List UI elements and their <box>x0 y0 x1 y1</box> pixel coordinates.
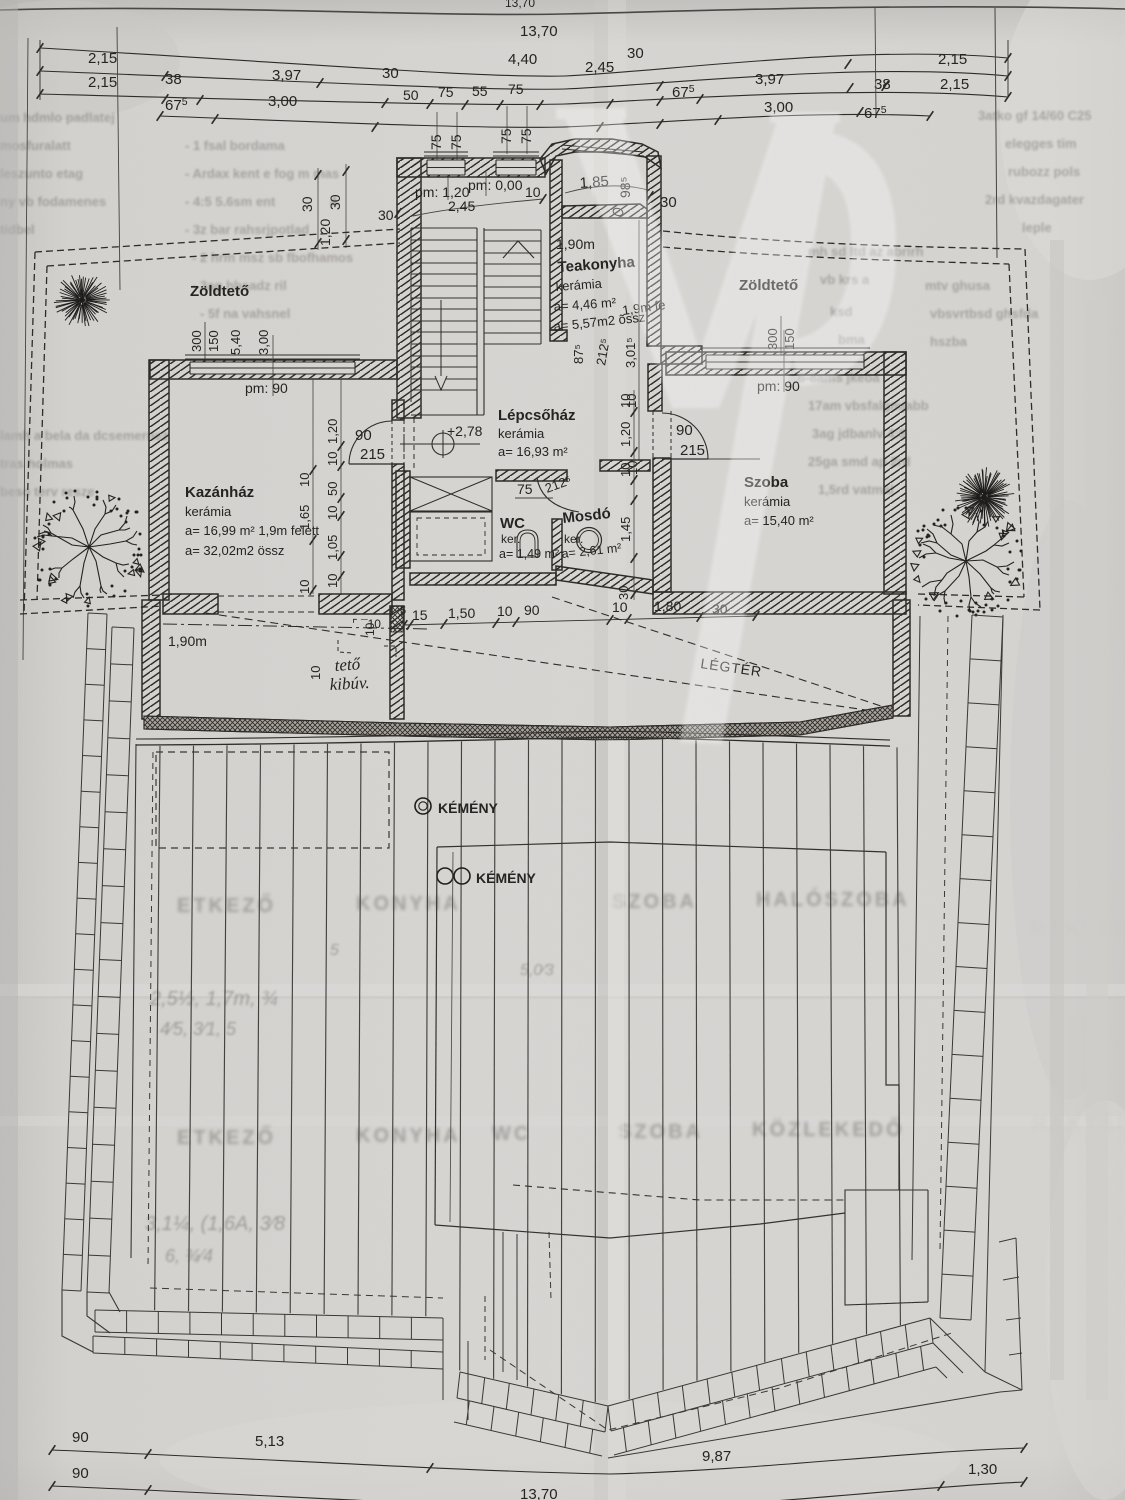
svg-text:150: 150 <box>206 330 221 352</box>
svg-text:5: 5 <box>182 96 188 108</box>
svg-text:leple: leple <box>1022 220 1052 235</box>
svg-text:Zöldtető: Zöldtető <box>190 283 249 300</box>
svg-text:3,00: 3,00 <box>268 93 297 110</box>
svg-text:SZOBA: SZOBA <box>618 1121 703 1143</box>
svg-text:75: 75 <box>498 128 514 144</box>
svg-text:10: 10 <box>325 506 340 520</box>
svg-text:30: 30 <box>627 45 644 62</box>
svg-text:10: 10 <box>325 452 340 466</box>
svg-text:10: 10 <box>297 580 312 594</box>
svg-text:1,90m: 1,90m <box>556 236 595 252</box>
svg-text:pm: 90: pm: 90 <box>245 380 288 396</box>
svg-text:- 4:5 5.6sm ent: - 4:5 5.6sm ent <box>185 194 276 209</box>
svg-text:- 5f na vahsnel: - 5f na vahsnel <box>200 306 290 321</box>
svg-text:75: 75 <box>438 84 454 100</box>
svg-text:mtv ghusa: mtv ghusa <box>925 278 991 293</box>
svg-text:10: 10 <box>363 622 377 636</box>
svg-text:13,70: 13,70 <box>520 23 558 40</box>
svg-text:5: 5 <box>400 605 406 617</box>
svg-text:10: 10 <box>612 599 628 615</box>
svg-text:2,15: 2,15 <box>88 50 117 67</box>
svg-text:10: 10 <box>497 603 513 619</box>
svg-text:5: 5 <box>330 942 339 959</box>
svg-text:30: 30 <box>382 65 399 82</box>
svg-text:10: 10 <box>297 473 312 487</box>
svg-text:1,80: 1,80 <box>654 598 681 614</box>
svg-text:3atko gf 14/60 C25: 3atko gf 14/60 C25 <box>978 108 1091 123</box>
svg-text:1,65: 1,65 <box>297 505 312 530</box>
svg-text:rubozz pols: rubozz pols <box>1008 164 1080 179</box>
svg-text:1,20: 1,20 <box>325 419 340 444</box>
svg-text:30: 30 <box>616 586 631 600</box>
svg-text:- 2 hrm msz sb fbofhamos: - 2 hrm msz sb fbofhamos <box>192 250 353 265</box>
svg-text:+2,78: +2,78 <box>447 423 483 439</box>
svg-text:67: 67 <box>672 84 689 101</box>
svg-text:38: 38 <box>874 76 891 93</box>
svg-text:30: 30 <box>327 194 343 210</box>
svg-text:elegges tim: elegges tim <box>1005 136 1077 151</box>
svg-text:75: 75 <box>448 134 464 150</box>
svg-text:5,40: 5,40 <box>228 330 243 355</box>
svg-text:2,15: 2,15 <box>938 51 967 68</box>
svg-text:2rd kvazdagater: 2rd kvazdagater <box>985 192 1084 207</box>
svg-text:1,20: 1,20 <box>618 422 633 447</box>
svg-text:vbsvrtbsd ghsfda: vbsvrtbsd ghsfda <box>930 306 1039 321</box>
svg-text:kerámia: kerámia <box>185 504 232 519</box>
svg-text:Lépcsőház: Lépcsőház <box>498 407 576 424</box>
svg-text:30: 30 <box>660 194 677 211</box>
svg-text:90: 90 <box>72 1429 89 1446</box>
svg-text:75: 75 <box>508 81 524 97</box>
svg-text:KONYHA: KONYHA <box>356 1125 461 1147</box>
svg-text:a= 1,49 m²: a= 1,49 m² <box>499 547 559 561</box>
svg-text:87⁵: 87⁵ <box>571 344 586 364</box>
svg-text:30: 30 <box>378 207 394 223</box>
svg-text:215: 215 <box>360 446 385 463</box>
svg-text:KÉMÉNY: KÉMÉNY <box>476 870 537 886</box>
svg-text:RAKTÁR: RAKTÁR <box>1032 1112 1125 1135</box>
svg-text:13,70: 13,70 <box>520 1486 558 1500</box>
svg-text:- 3z bar rahsrjpotlad: - 3z bar rahsrjpotlad <box>185 222 309 237</box>
svg-text:75: 75 <box>428 134 444 150</box>
svg-text:ETKEZŐ: ETKEZŐ <box>177 1126 276 1149</box>
svg-text:1,20: 1,20 <box>317 219 333 246</box>
svg-text:lamh a bela da dcsemernez: lamh a bela da dcsemernez <box>0 428 169 443</box>
svg-text:1,50: 1,50 <box>448 605 475 621</box>
svg-text:1,90m: 1,90m <box>168 633 207 649</box>
svg-text:3,97: 3,97 <box>272 67 301 84</box>
svg-text:2,45: 2,45 <box>585 59 614 76</box>
svg-text:4⁄5, 3⁄1, 5: 4⁄5, 3⁄1, 5 <box>160 1019 237 1039</box>
svg-text:KÉMÉNY: KÉMÉNY <box>438 800 499 816</box>
svg-text:10: 10 <box>618 394 633 408</box>
svg-text:90: 90 <box>72 1465 89 1482</box>
svg-text:KÖZLEKEDŐ: KÖZLEKEDŐ <box>752 1118 905 1141</box>
svg-text:10: 10 <box>325 574 340 588</box>
svg-text:3,00: 3,00 <box>256 330 271 355</box>
svg-text:a= 32,02m2 össz: a= 32,02m2 össz <box>185 543 284 558</box>
svg-text:4,40: 4,40 <box>508 51 537 68</box>
svg-text:90: 90 <box>524 602 540 618</box>
svg-text:5: 5 <box>689 83 695 95</box>
svg-text:1,5rd vatmal: 1,5rd vatmal <box>818 482 894 497</box>
svg-text:30: 30 <box>299 196 315 212</box>
svg-text:15: 15 <box>412 607 428 623</box>
svg-text:9,87: 9,87 <box>702 1448 731 1465</box>
svg-text:75: 75 <box>518 128 534 144</box>
svg-text:2,45: 2,45 <box>448 198 475 214</box>
svg-text:67: 67 <box>165 97 182 114</box>
svg-text:38: 38 <box>165 71 182 88</box>
svg-text:tető: tető <box>334 654 362 675</box>
svg-text:10: 10 <box>525 184 541 200</box>
svg-text:SZOBA: SZOBA <box>612 891 697 913</box>
svg-text:75: 75 <box>517 481 533 497</box>
svg-text:90: 90 <box>355 427 372 444</box>
svg-text:5,0⁄3: 5,0⁄3 <box>520 962 554 979</box>
svg-text:WC: WC <box>500 515 525 532</box>
svg-text:WC: WC <box>492 1123 531 1145</box>
svg-text:1,05: 1,05 <box>325 535 340 560</box>
svg-text:1,45: 1,45 <box>618 517 633 542</box>
svg-text:5,13: 5,13 <box>255 1433 284 1450</box>
svg-text:90: 90 <box>676 422 693 439</box>
svg-text:kerámia: kerámia <box>498 426 545 441</box>
svg-text:2,15: 2,15 <box>940 76 969 93</box>
svg-text:3,01⁵: 3,01⁵ <box>623 337 638 368</box>
svg-text:5: 5 <box>881 104 887 116</box>
svg-text:50: 50 <box>325 482 340 496</box>
svg-text:Kazánház: Kazánház <box>185 484 254 501</box>
svg-text:10: 10 <box>618 463 633 477</box>
svg-text:215: 215 <box>680 442 705 459</box>
svg-text:a= 16,93 m²: a= 16,93 m² <box>498 444 568 459</box>
svg-text:1,30: 1,30 <box>968 1461 997 1478</box>
svg-text:10: 10 <box>308 666 323 680</box>
svg-text:13,70: 13,70 <box>505 0 535 10</box>
svg-text:300: 300 <box>189 330 204 352</box>
svg-text:RAKTÁR: RAKTÁR <box>1030 918 1125 941</box>
svg-text:17am vbsfalgmjabb: 17am vbsfalgmjabb <box>808 398 929 413</box>
svg-text:2,15: 2,15 <box>88 74 117 91</box>
svg-text:kibúv.: kibúv. <box>329 673 370 694</box>
svg-text:50: 50 <box>403 87 419 103</box>
svg-text:hszba: hszba <box>930 334 968 349</box>
svg-text:HALÓSZOBA: HALÓSZOBA <box>756 887 910 911</box>
svg-text:3,1¼, (1,6A, 3⁄8: 3,1¼, (1,6A, 3⁄8 <box>145 1213 285 1235</box>
svg-text:3,97: 3,97 <box>755 71 784 88</box>
svg-text:- 1 fsal bordama: - 1 fsal bordama <box>185 138 285 153</box>
svg-text:KONYHA: KONYHA <box>356 893 461 915</box>
svg-text:55: 55 <box>472 83 488 99</box>
svg-text:pm: 0,00: pm: 0,00 <box>468 177 523 193</box>
svg-text:67: 67 <box>864 105 881 122</box>
